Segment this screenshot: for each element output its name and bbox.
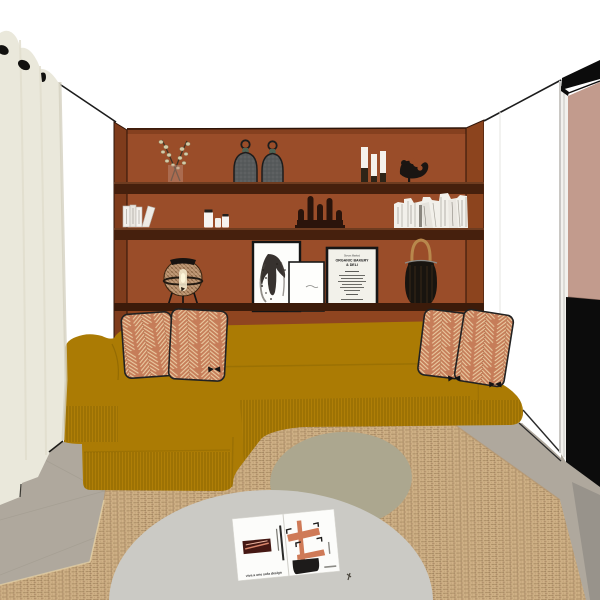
svg-text:ORGANIC BAKERY: ORGANIC BAKERY: [335, 259, 369, 263]
svg-text:Stevns Marked: Stevns Marked: [344, 255, 361, 258]
svg-text:& DELI: & DELI: [346, 263, 358, 267]
